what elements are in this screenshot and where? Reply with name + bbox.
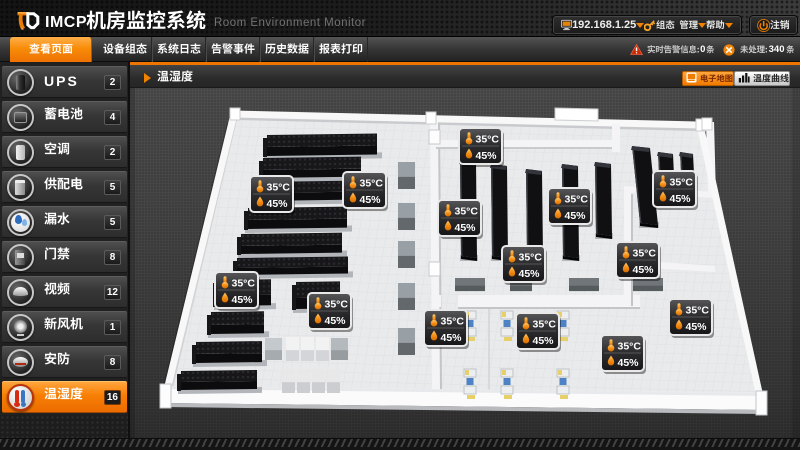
- svg-text:35°C: 35°C: [565, 194, 589, 206]
- svg-text:45%: 45%: [519, 268, 541, 280]
- svg-text:45%: 45%: [267, 198, 289, 210]
- svg-text:45%: 45%: [633, 264, 655, 276]
- svg-text:35°C: 35°C: [533, 319, 557, 331]
- svg-text:35°C: 35°C: [232, 278, 256, 290]
- svg-text:35°C: 35°C: [325, 299, 349, 311]
- svg-text:35°C: 35°C: [441, 316, 465, 328]
- svg-text:35°C: 35°C: [633, 248, 657, 260]
- svg-text:35°C: 35°C: [455, 206, 479, 218]
- svg-text:45%: 45%: [232, 294, 254, 306]
- svg-text:45%: 45%: [360, 194, 382, 206]
- svg-text:45%: 45%: [670, 193, 692, 205]
- svg-text:35°C: 35°C: [476, 134, 500, 146]
- svg-text:35°C: 35°C: [686, 305, 710, 317]
- svg-text:35°C: 35°C: [519, 252, 543, 264]
- svg-text:35°C: 35°C: [267, 182, 291, 194]
- svg-text:45%: 45%: [565, 210, 587, 222]
- svg-text:35°C: 35°C: [360, 178, 384, 190]
- svg-text:45%: 45%: [441, 332, 463, 344]
- svg-text:45%: 45%: [618, 357, 640, 369]
- svg-text:45%: 45%: [686, 321, 708, 333]
- svg-text:45%: 45%: [533, 335, 555, 347]
- svg-text:35°C: 35°C: [618, 341, 642, 353]
- svg-text:35°C: 35°C: [670, 177, 694, 189]
- svg-text:45%: 45%: [476, 150, 498, 162]
- svg-text:45%: 45%: [455, 222, 477, 234]
- svg-text:45%: 45%: [325, 315, 347, 327]
